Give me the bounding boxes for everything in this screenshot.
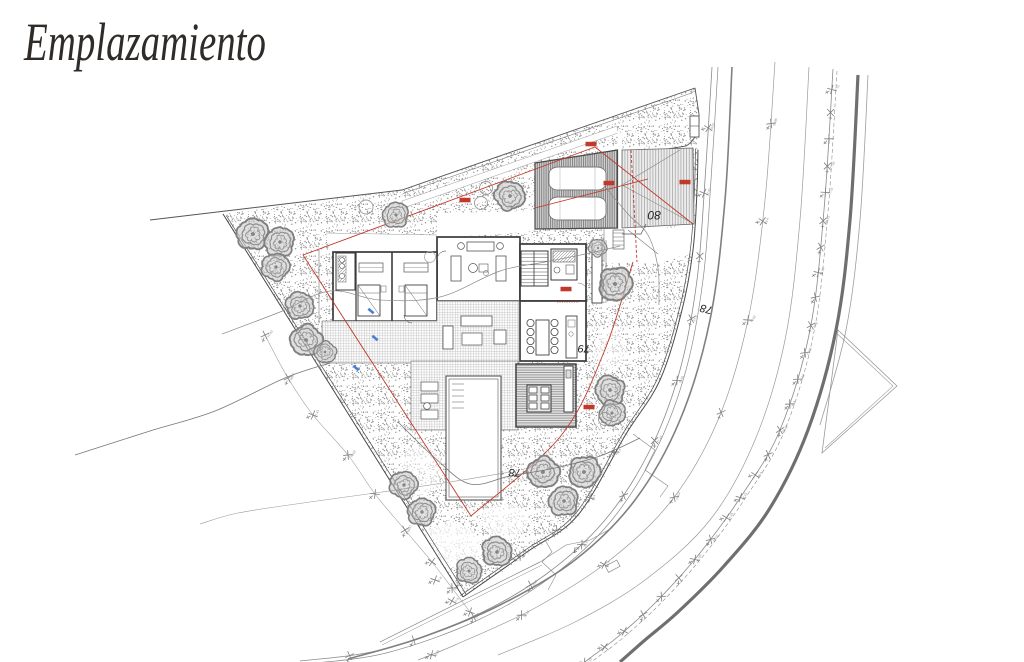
svg-text:78.02: 78.02 bbox=[781, 424, 789, 433]
svg-text:77.43: 77.43 bbox=[586, 657, 594, 662]
svg-text:77.43: 77.43 bbox=[705, 187, 712, 196]
svg-text:78.4: 78.4 bbox=[764, 217, 770, 224]
svg-text:78.02: 78.02 bbox=[712, 534, 720, 543]
svg-text:76.61: 76.61 bbox=[289, 372, 296, 381]
svg-text:77.8: 77.8 bbox=[436, 576, 443, 584]
svg-text:76.61: 76.61 bbox=[824, 215, 831, 224]
svg-text:80: 80 bbox=[647, 208, 661, 222]
svg-text:78.02: 78.02 bbox=[675, 491, 681, 500]
svg-text:77.15: 77.15 bbox=[741, 492, 748, 501]
svg-text:7: 7 bbox=[571, 545, 578, 553]
svg-text:76.61: 76.61 bbox=[406, 524, 413, 533]
svg-text:77.15: 77.15 bbox=[806, 347, 813, 356]
svg-text:78.02: 78.02 bbox=[349, 449, 357, 458]
svg-text:77.8: 77.8 bbox=[583, 541, 589, 548]
svg-text:78.4: 78.4 bbox=[591, 494, 597, 501]
svg-text:78.02: 78.02 bbox=[749, 314, 757, 323]
svg-text:79: 79 bbox=[578, 342, 590, 354]
svg-text:77.43: 77.43 bbox=[728, 512, 735, 521]
svg-text:78.4: 78.4 bbox=[605, 561, 611, 568]
svg-text:78.02: 78.02 bbox=[799, 373, 806, 382]
svg-text:76.98: 76.98 bbox=[433, 649, 441, 658]
svg-text:78.02: 78.02 bbox=[819, 267, 825, 276]
svg-text:77.43: 77.43 bbox=[314, 409, 320, 418]
svg-text:78: 78 bbox=[698, 301, 713, 316]
svg-text:77.8: 77.8 bbox=[812, 321, 819, 329]
svg-text:77.43: 77.43 bbox=[829, 161, 837, 170]
svg-text:76.98: 76.98 bbox=[696, 554, 703, 563]
svg-text:76.98: 76.98 bbox=[772, 118, 778, 127]
svg-text:76.61: 76.61 bbox=[678, 375, 685, 384]
svg-text:78: 78 bbox=[508, 466, 521, 478]
svg-text:77.43: 77.43 bbox=[266, 329, 274, 338]
svg-text:77.8: 77.8 bbox=[453, 597, 460, 605]
svg-text:77.15: 77.15 bbox=[827, 187, 835, 196]
svg-text:77.15: 77.15 bbox=[833, 84, 841, 93]
svg-text:78.4: 78.4 bbox=[791, 400, 797, 407]
